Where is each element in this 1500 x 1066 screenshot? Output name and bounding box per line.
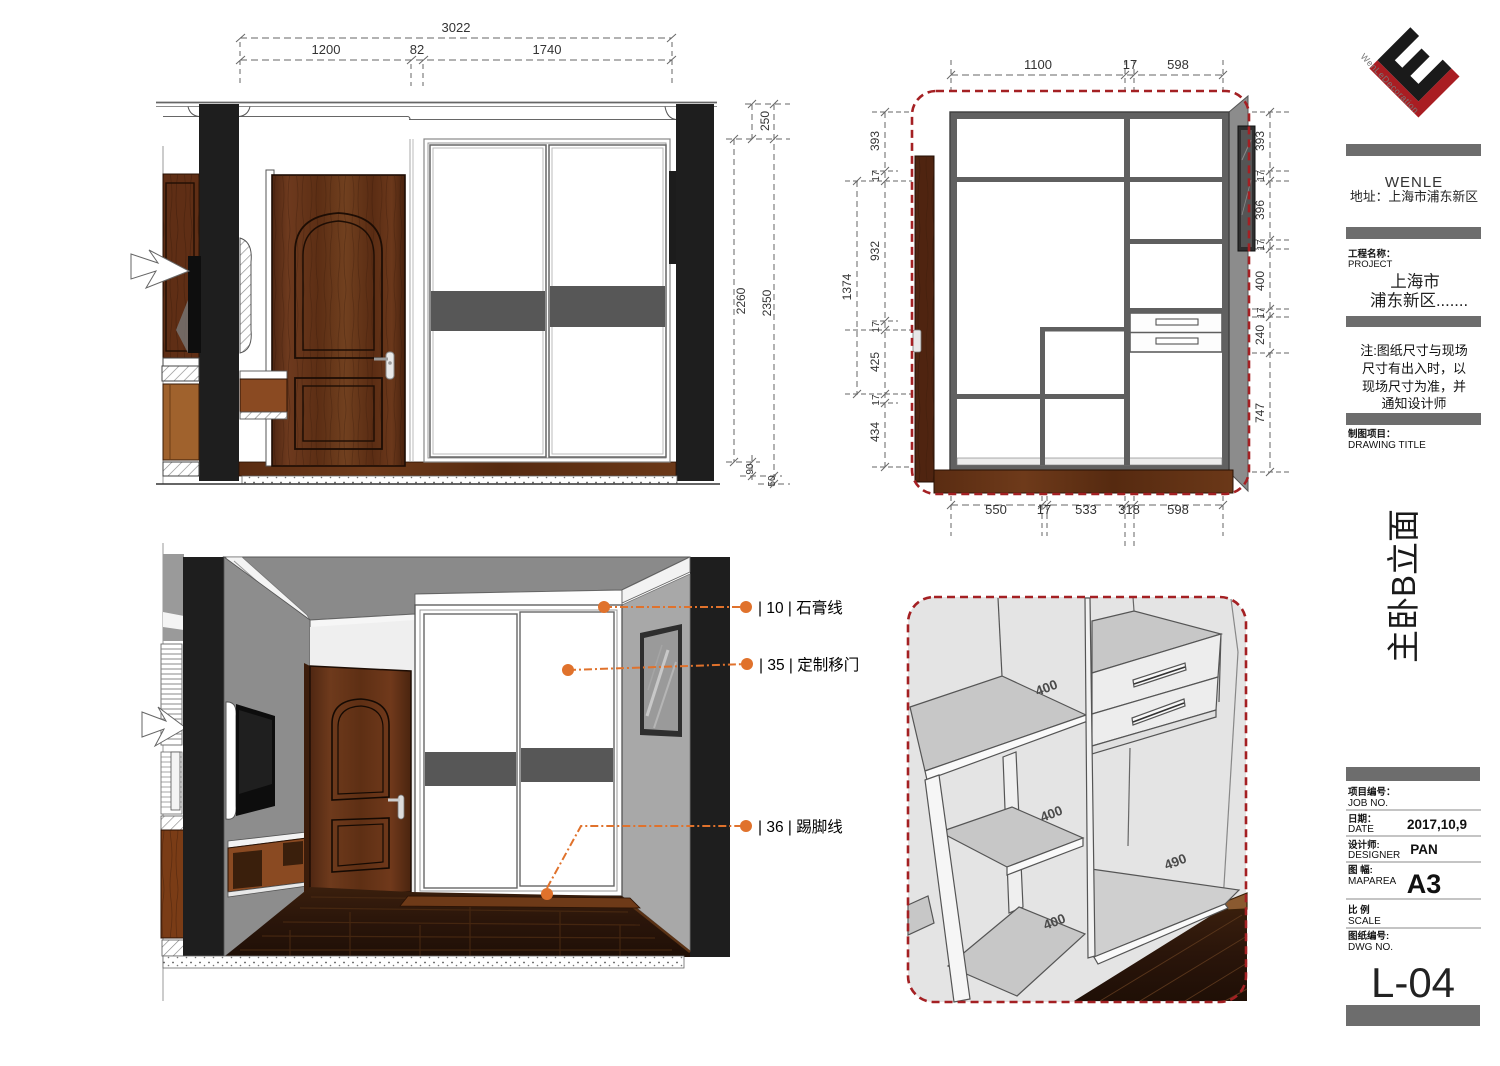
- svg-text:制图项目：: 制图项目：: [1348, 428, 1396, 440]
- svg-text:| 36 | 踢脚线: | 36 | 踢脚线: [758, 818, 843, 836]
- svg-text:17: 17: [1256, 170, 1267, 182]
- svg-text:现场尺寸为准，并: 现场尺寸为准，并: [1362, 379, 1466, 394]
- svg-text:尺寸有出入时，以: 尺寸有出入时，以: [1362, 361, 1466, 376]
- svg-text:上海市: 上海市: [1390, 272, 1440, 291]
- svg-text:图 幅:: 图 幅:: [1348, 864, 1373, 876]
- svg-text:318: 318: [1118, 502, 1140, 517]
- svg-text:17: 17: [871, 321, 882, 333]
- svg-text:425: 425: [868, 352, 882, 372]
- svg-text:932: 932: [868, 241, 882, 261]
- svg-text:MAPAREA: MAPAREA: [1348, 876, 1396, 887]
- svg-text:主卧B立面: 主卧B立面: [1385, 509, 1422, 663]
- svg-text:82: 82: [410, 42, 424, 57]
- svg-text:L-04: L-04: [1371, 959, 1455, 1006]
- svg-text:17: 17: [1123, 57, 1137, 72]
- svg-text:50: 50: [767, 475, 778, 487]
- svg-text:通知设计师: 通知设计师: [1381, 396, 1446, 411]
- svg-text:598: 598: [1167, 502, 1189, 517]
- svg-text:598: 598: [1167, 57, 1189, 72]
- svg-text:250: 250: [758, 111, 772, 131]
- svg-text:1740: 1740: [533, 42, 562, 57]
- svg-text:DESIGNER: DESIGNER: [1348, 850, 1400, 861]
- svg-text:747: 747: [1253, 403, 1267, 423]
- svg-text:比 例: 比 例: [1348, 904, 1370, 916]
- svg-text:533: 533: [1075, 502, 1097, 517]
- svg-text:393: 393: [868, 131, 882, 151]
- svg-text:3022: 3022: [442, 20, 471, 35]
- svg-text:1200: 1200: [312, 42, 341, 57]
- svg-text:240: 240: [1253, 325, 1267, 345]
- svg-text:17: 17: [1256, 307, 1267, 319]
- svg-text:SCALE: SCALE: [1348, 916, 1381, 927]
- svg-text:DRAWING TITLE: DRAWING TITLE: [1348, 440, 1426, 451]
- svg-text:JOB NO.: JOB NO.: [1348, 798, 1388, 809]
- svg-text:90: 90: [745, 463, 756, 475]
- svg-text:17: 17: [871, 394, 882, 406]
- svg-text:1100: 1100: [1024, 57, 1052, 72]
- svg-text:550: 550: [985, 502, 1007, 517]
- svg-text:项目编号：: 项目编号：: [1348, 786, 1396, 798]
- svg-text:注:图纸尺寸与现场: 注:图纸尺寸与现场: [1360, 343, 1468, 358]
- svg-text:地址：上海市浦东新区: 地址：上海市浦东新区: [1350, 189, 1478, 204]
- svg-text:1374: 1374: [840, 273, 854, 300]
- svg-text:DWG NO.: DWG NO.: [1348, 942, 1393, 953]
- svg-text:PROJECT: PROJECT: [1348, 259, 1393, 270]
- svg-text:浦东新区.......: 浦东新区.......: [1370, 291, 1468, 310]
- svg-text:A3: A3: [1407, 869, 1442, 899]
- svg-text:17: 17: [1037, 502, 1051, 517]
- svg-text:PAN: PAN: [1410, 842, 1438, 857]
- svg-text:400: 400: [1253, 271, 1267, 291]
- svg-text:图纸编号:: 图纸编号:: [1348, 930, 1389, 942]
- svg-text:434: 434: [868, 422, 882, 442]
- svg-text:17: 17: [871, 170, 882, 182]
- svg-text:2017,10,9: 2017,10,9: [1407, 817, 1467, 832]
- svg-text:| 35 | 定制移门: | 35 | 定制移门: [759, 656, 859, 674]
- svg-text:2350: 2350: [760, 289, 774, 316]
- svg-text:17: 17: [1256, 239, 1267, 251]
- svg-text:| 10 | 石膏线: | 10 | 石膏线: [758, 599, 843, 617]
- svg-text:DATE: DATE: [1348, 824, 1374, 835]
- svg-text:2260: 2260: [734, 287, 748, 314]
